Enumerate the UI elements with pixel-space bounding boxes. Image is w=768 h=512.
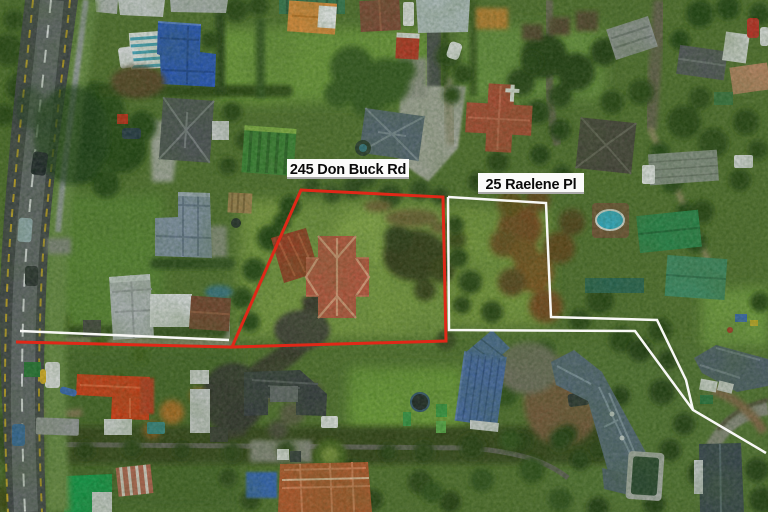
svg-text:245 Don Buck Rd: 245 Don Buck Rd (290, 162, 406, 178)
svg-text:25 Raelene Pl: 25 Raelene Pl (486, 177, 577, 193)
